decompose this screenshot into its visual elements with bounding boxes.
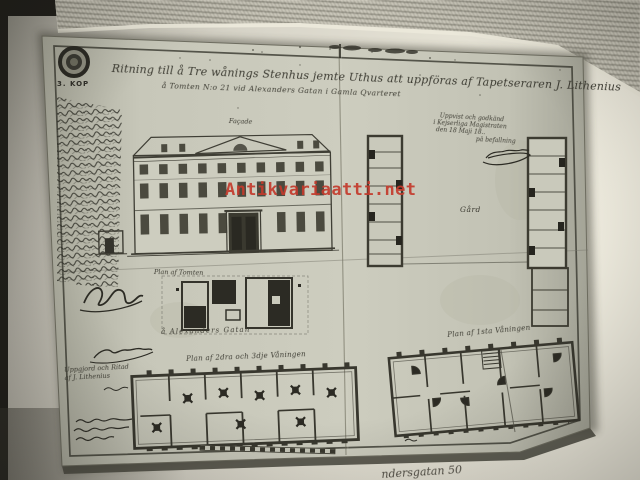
approval-note: Uppvist och godkänd i Kejserliga Magistr… [433,112,508,137]
book-photo: 3. KOP Ritning till å Tre wånings Stenhu… [0,0,640,480]
facade-label: Façade [229,117,253,126]
antikvariaatti-watermark: Antikvariaatti.net [225,180,416,200]
stamp-value-label: 3. KOP [57,80,89,88]
credit-note: Uppgjord och Ritad af J. Lithenius [64,363,129,382]
marginalia-handwriting [57,97,122,288]
site-plan-label: Plan af Tomten [154,268,204,277]
courtyard-label: Gård [460,205,481,214]
facade-entrance [224,210,263,253]
stamp-seal [59,47,89,77]
